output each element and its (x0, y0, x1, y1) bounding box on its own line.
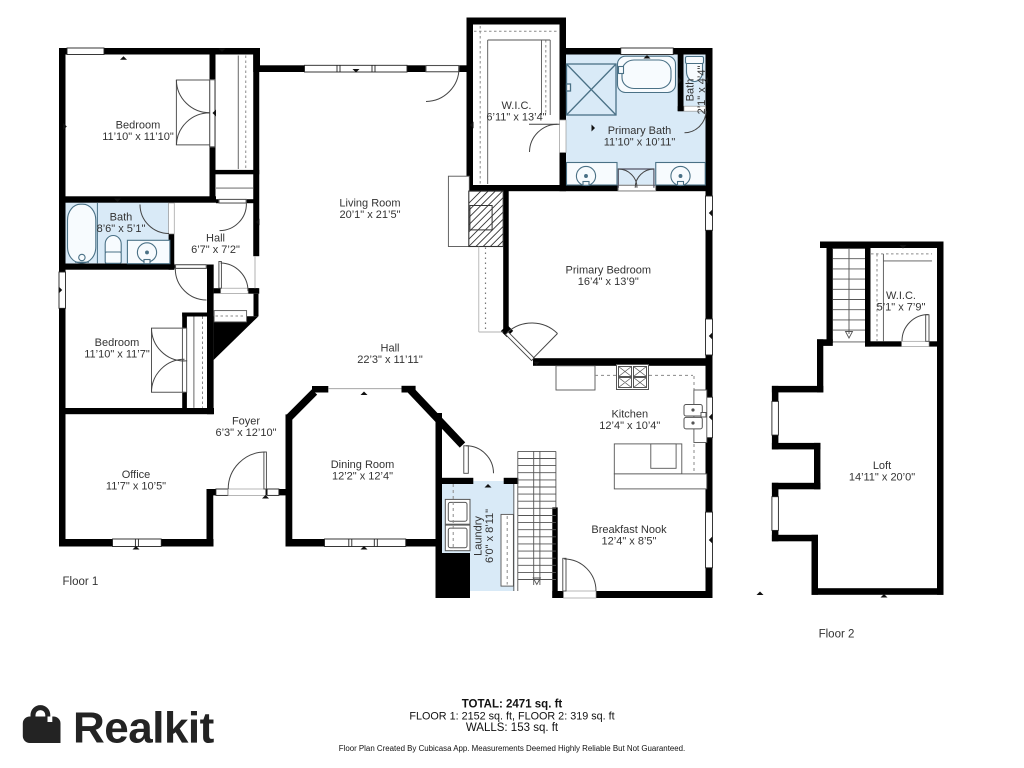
svg-text:12’4" x 10’4": 12’4" x 10’4" (599, 420, 660, 432)
svg-text:11’10" x 11’7": 11’10" x 11’7" (84, 349, 150, 361)
svg-text:Office: Office (122, 469, 151, 481)
svg-text:6’0" x 8’11": 6’0" x 8’11" (484, 509, 496, 563)
svg-text:WALLS: 153 sq. ft: WALLS: 153 sq. ft (466, 722, 559, 734)
svg-text:Realkit: Realkit (73, 704, 215, 753)
svg-text:Primary Bath: Primary Bath (608, 125, 672, 137)
svg-text:Loft: Loft (873, 460, 891, 472)
svg-text:5’1" x 7’9": 5’1" x 7’9" (877, 302, 926, 314)
svg-text:2’1" x 4’4": 2’1" x 4’4" (696, 66, 708, 115)
svg-text:FLOOR 1: 2152 sq. ft, FLOOR 2:: FLOOR 1: 2152 sq. ft, FLOOR 2: 319 sq. f… (409, 711, 614, 723)
svg-text:8’6" x 5’1": 8’6" x 5’1" (97, 223, 146, 235)
svg-text:11’7" x 10’5": 11’7" x 10’5" (106, 481, 166, 493)
svg-text:11’10" x 10’11": 11’10" x 10’11" (604, 137, 676, 149)
svg-text:12’4" x 8’5": 12’4" x 8’5" (602, 536, 657, 548)
svg-text:Living Room: Living Room (339, 198, 400, 210)
svg-text:Hall: Hall (381, 343, 400, 355)
svg-text:22’3" x 11’11": 22’3" x 11’11" (357, 354, 423, 366)
svg-text:6’3" x 12’10": 6’3" x 12’10" (215, 427, 276, 439)
svg-text:20’1" x 21’5": 20’1" x 21’5" (339, 209, 400, 221)
svg-text:TOTAL: 2471 sq. ft: TOTAL: 2471 sq. ft (462, 699, 563, 711)
svg-text:Bedroom: Bedroom (95, 337, 140, 349)
svg-text:Bath: Bath (110, 212, 133, 224)
svg-text:12’2" x 12’4": 12’2" x 12’4" (332, 471, 393, 483)
svg-text:Floor Plan Created By Cubicasa: Floor Plan Created By Cubicasa App. Meas… (339, 744, 686, 753)
svg-text:Hall: Hall (206, 233, 225, 245)
svg-text:Kitchen: Kitchen (611, 409, 648, 421)
svg-text:6’11" x 13’4": 6’11" x 13’4" (486, 112, 546, 124)
svg-text:Breakfast Nook: Breakfast Nook (591, 524, 667, 536)
svg-text:Foyer: Foyer (232, 416, 260, 428)
svg-text:11’10" x 11’10": 11’10" x 11’10" (102, 131, 174, 143)
svg-text:Dining Room: Dining Room (331, 459, 395, 471)
svg-text:16’4" x 13’9": 16’4" x 13’9" (578, 276, 639, 288)
svg-text:Floor 1: Floor 1 (63, 576, 99, 588)
svg-text:Bath: Bath (684, 79, 696, 102)
svg-text:Primary Bedroom: Primary Bedroom (566, 265, 652, 277)
svg-text:14’11" x 20’0": 14’11" x 20’0" (849, 472, 915, 484)
svg-text:Laundry: Laundry (472, 516, 484, 556)
svg-text:Floor 2: Floor 2 (819, 629, 855, 641)
svg-text:Bedroom: Bedroom (116, 120, 161, 132)
svg-text:6’7" x 7’2": 6’7" x 7’2" (191, 244, 240, 256)
svg-text:W.I.C.: W.I.C. (502, 100, 532, 112)
svg-text:W.I.C.: W.I.C. (886, 290, 916, 302)
